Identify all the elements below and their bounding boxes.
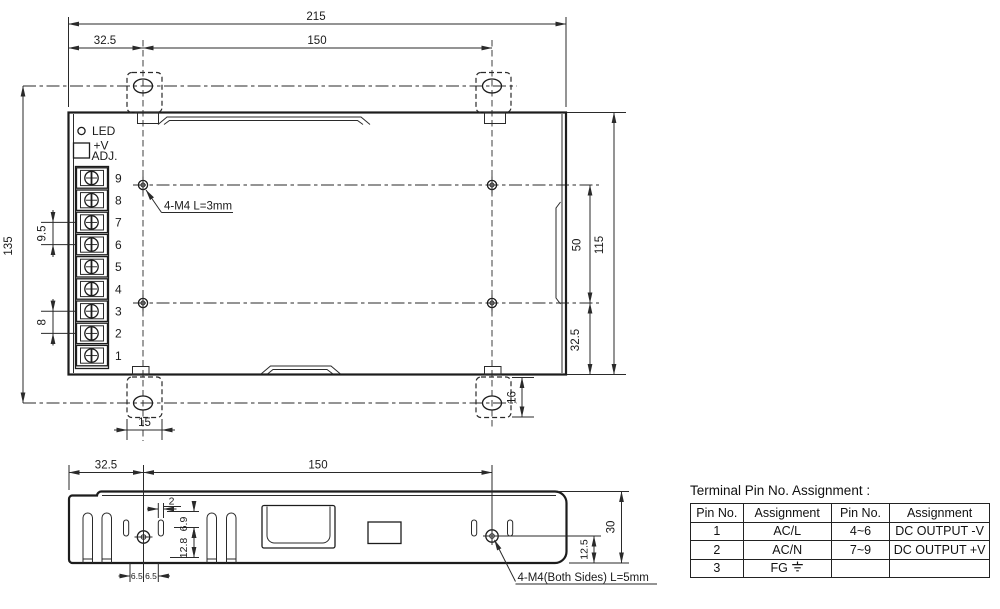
- dim-mount-span: 150: [307, 35, 326, 47]
- top-view: 9 8 7 6 5 4 3 2 1 LED +V ADJ.: [3, 11, 626, 441]
- terminal-number: 7: [115, 216, 122, 230]
- terminal-number: 3: [115, 305, 122, 319]
- table-cell: 7~9: [831, 541, 889, 560]
- dim-width-overall: 215: [306, 11, 325, 23]
- table-cell: [831, 559, 889, 578]
- side-view-vents: [83, 506, 513, 564]
- dim-side-mount-offset: 32.5: [95, 460, 117, 472]
- dim-slot-bottom: 12.8: [178, 538, 190, 559]
- table-row: 2 AC/N 7~9 DC OUTPUT +V: [691, 541, 990, 560]
- side-recess-cutout: [262, 506, 335, 549]
- dim-hole-offset: 12.5: [579, 539, 591, 560]
- table-cell: 4~6: [831, 522, 889, 541]
- table-header-cell: Pin No.: [831, 504, 889, 523]
- dim-tab-width: 15: [138, 417, 151, 429]
- side-view-extension-lines: [69, 465, 629, 582]
- dim-slot-top: 6.9: [178, 517, 190, 532]
- dim-depth: 115: [594, 236, 606, 254]
- dim-pitch-input: 8: [37, 319, 49, 325]
- table-cell: 1: [691, 522, 744, 541]
- dim-right-gap: 6.5: [145, 571, 157, 581]
- top-view-extension-lines: [41, 17, 626, 440]
- terminal-number: 4: [115, 282, 122, 296]
- terminal-numbers: 9 8 7 6 5 4 3 2 1: [115, 171, 122, 363]
- led-label: LED: [92, 124, 116, 138]
- mounting-holes: [138, 177, 496, 312]
- terminal-number: 9: [115, 171, 122, 185]
- dim-height-overall: 135: [3, 236, 15, 255]
- table-row: 1 AC/L 4~6 DC OUTPUT -V: [691, 522, 990, 541]
- adj-label-adj: ADJ.: [92, 149, 118, 163]
- side-view-dimension-lines: [69, 473, 657, 585]
- adj-potentiometer: +V ADJ.: [74, 139, 118, 164]
- screw-note-top: 4-M4 L=3mm: [164, 201, 232, 213]
- dim-mount-offset: 32.5: [94, 35, 116, 47]
- ground-icon: [791, 561, 804, 573]
- dim-slot-width: 2: [169, 496, 175, 508]
- pin-table-title: Terminal Pin No. Assignment :: [690, 483, 990, 498]
- table-header-cell: Assignment: [890, 504, 990, 523]
- table-cell: FG: [743, 559, 831, 578]
- top-view-centerlines: [23, 40, 599, 441]
- side-view: 32.5 150 2 6.9 12.8 6.5 6.5 12.5 30 4-M4…: [69, 460, 657, 585]
- table-row: 3 FG: [691, 559, 990, 578]
- dim-tab-height: 16: [507, 391, 519, 404]
- terminal-number: 1: [115, 349, 122, 363]
- side-small-cutout: [368, 522, 401, 544]
- terminal-number: 2: [115, 327, 122, 341]
- table-cell: 3: [691, 559, 744, 578]
- screw-note-side: 4-M4(Both Sides) L=5mm: [518, 572, 649, 584]
- terminal-number: 5: [115, 260, 122, 274]
- table-cell: DC OUTPUT +V: [890, 541, 990, 560]
- dim-bottom-offset: 32.5: [570, 329, 582, 351]
- dim-side-height: 30: [606, 521, 618, 534]
- table-header-cell: Assignment: [743, 504, 831, 523]
- terminal-number: 8: [115, 194, 122, 208]
- terminal-number: 6: [115, 238, 122, 252]
- table-cell: DC OUTPUT -V: [890, 522, 990, 541]
- pin-assignment-section: Terminal Pin No. Assignment : Pin No. As…: [690, 483, 990, 578]
- table-cell: AC/N: [743, 541, 831, 560]
- dim-hole-span-v: 50: [572, 239, 584, 252]
- pin-assignment-table: Pin No. Assignment Pin No. Assignment 1 …: [690, 503, 990, 578]
- table-cell: 2: [691, 541, 744, 560]
- led-indicator: LED: [78, 124, 116, 138]
- dim-side-mount-span: 150: [308, 460, 327, 472]
- table-header-cell: Pin No.: [691, 504, 744, 523]
- dim-pitch-output: 9.5: [37, 226, 49, 242]
- dim-left-gap: 6.5: [131, 571, 143, 581]
- mechanical-drawing-page: 9 8 7 6 5 4 3 2 1 LED +V ADJ.: [0, 0, 1000, 609]
- fg-label: FG: [771, 561, 788, 575]
- terminal-block: [76, 167, 109, 369]
- table-cell: AC/L: [743, 522, 831, 541]
- table-header-row: Pin No. Assignment Pin No. Assignment: [691, 504, 990, 523]
- table-cell: [890, 559, 990, 578]
